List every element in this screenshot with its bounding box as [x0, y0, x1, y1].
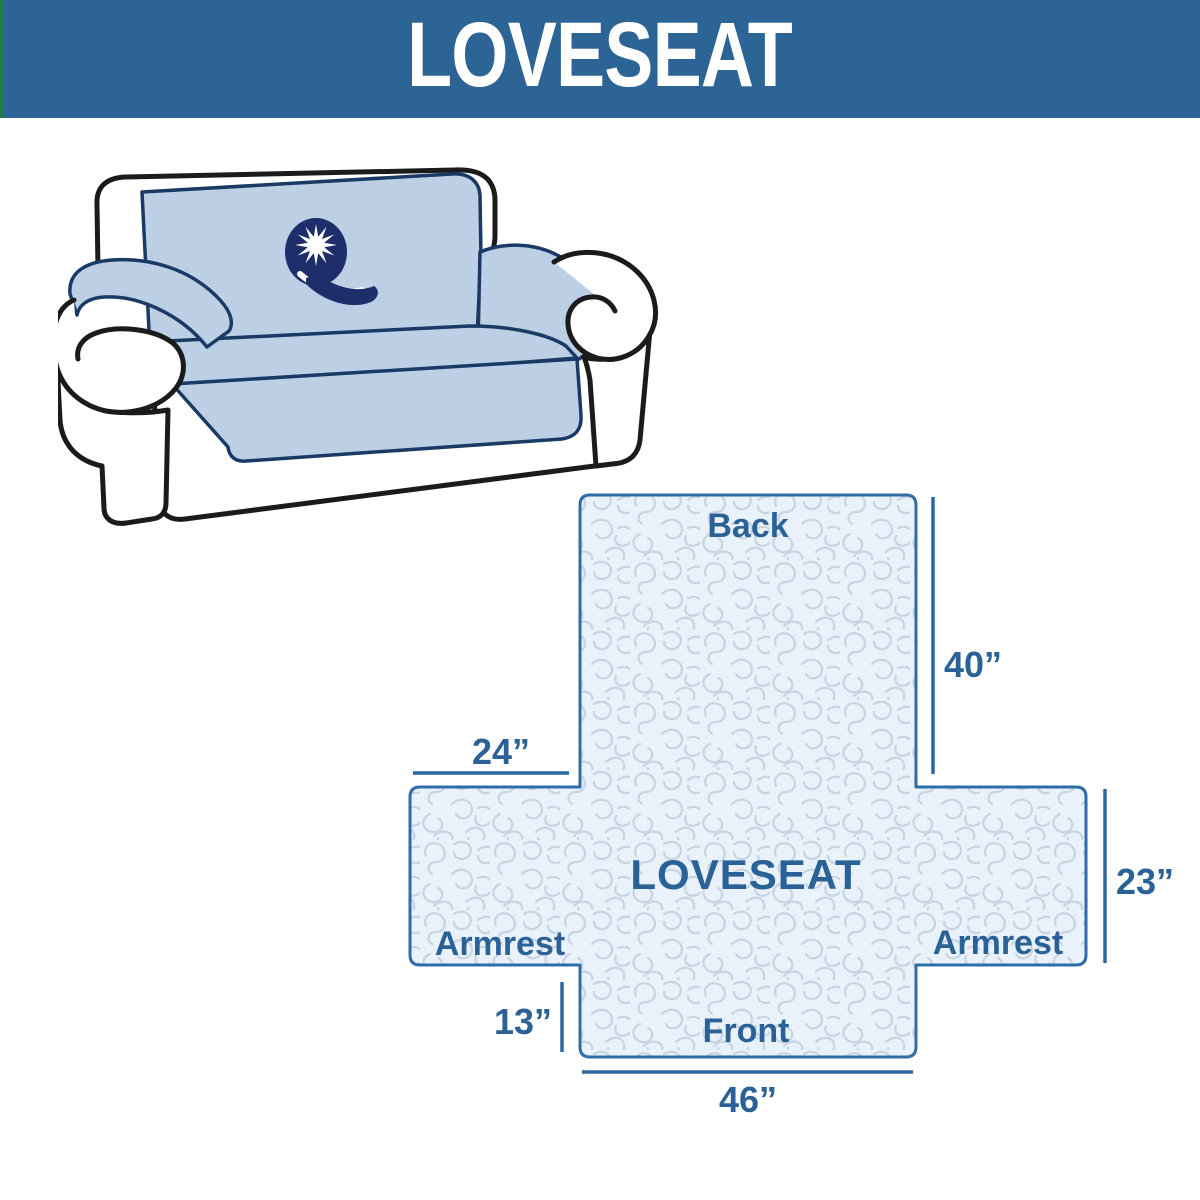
header-banner: LOVESEAT	[0, 0, 1200, 118]
back-section-label: Back	[707, 507, 788, 545]
front-section-label: Front	[703, 1012, 790, 1050]
front-width-dim-label: 46”	[719, 1079, 777, 1120]
cover-shape-texture	[410, 495, 1086, 1057]
armrest-width-dim-label: 24”	[472, 731, 530, 772]
page-title: LOVESEAT	[408, 9, 793, 109]
cover-cross-shape	[410, 495, 1086, 1057]
armrest-right-label: Armrest	[933, 924, 1063, 962]
front-height-dim-label: 13”	[494, 1001, 552, 1042]
armrest-left-label: Armrest	[435, 925, 565, 963]
cover-dimensions-diagram: Back LOVESEAT Armrest Armrest Front 40” …	[390, 470, 1190, 1140]
infographic-page: LOVESEAT	[0, 0, 1200, 1200]
back-height-dim-label: 40”	[944, 644, 1002, 685]
center-label: LOVESEAT	[630, 851, 861, 898]
header-accent-strip	[0, 0, 4, 118]
armrest-height-dim-label: 23”	[1116, 861, 1174, 902]
